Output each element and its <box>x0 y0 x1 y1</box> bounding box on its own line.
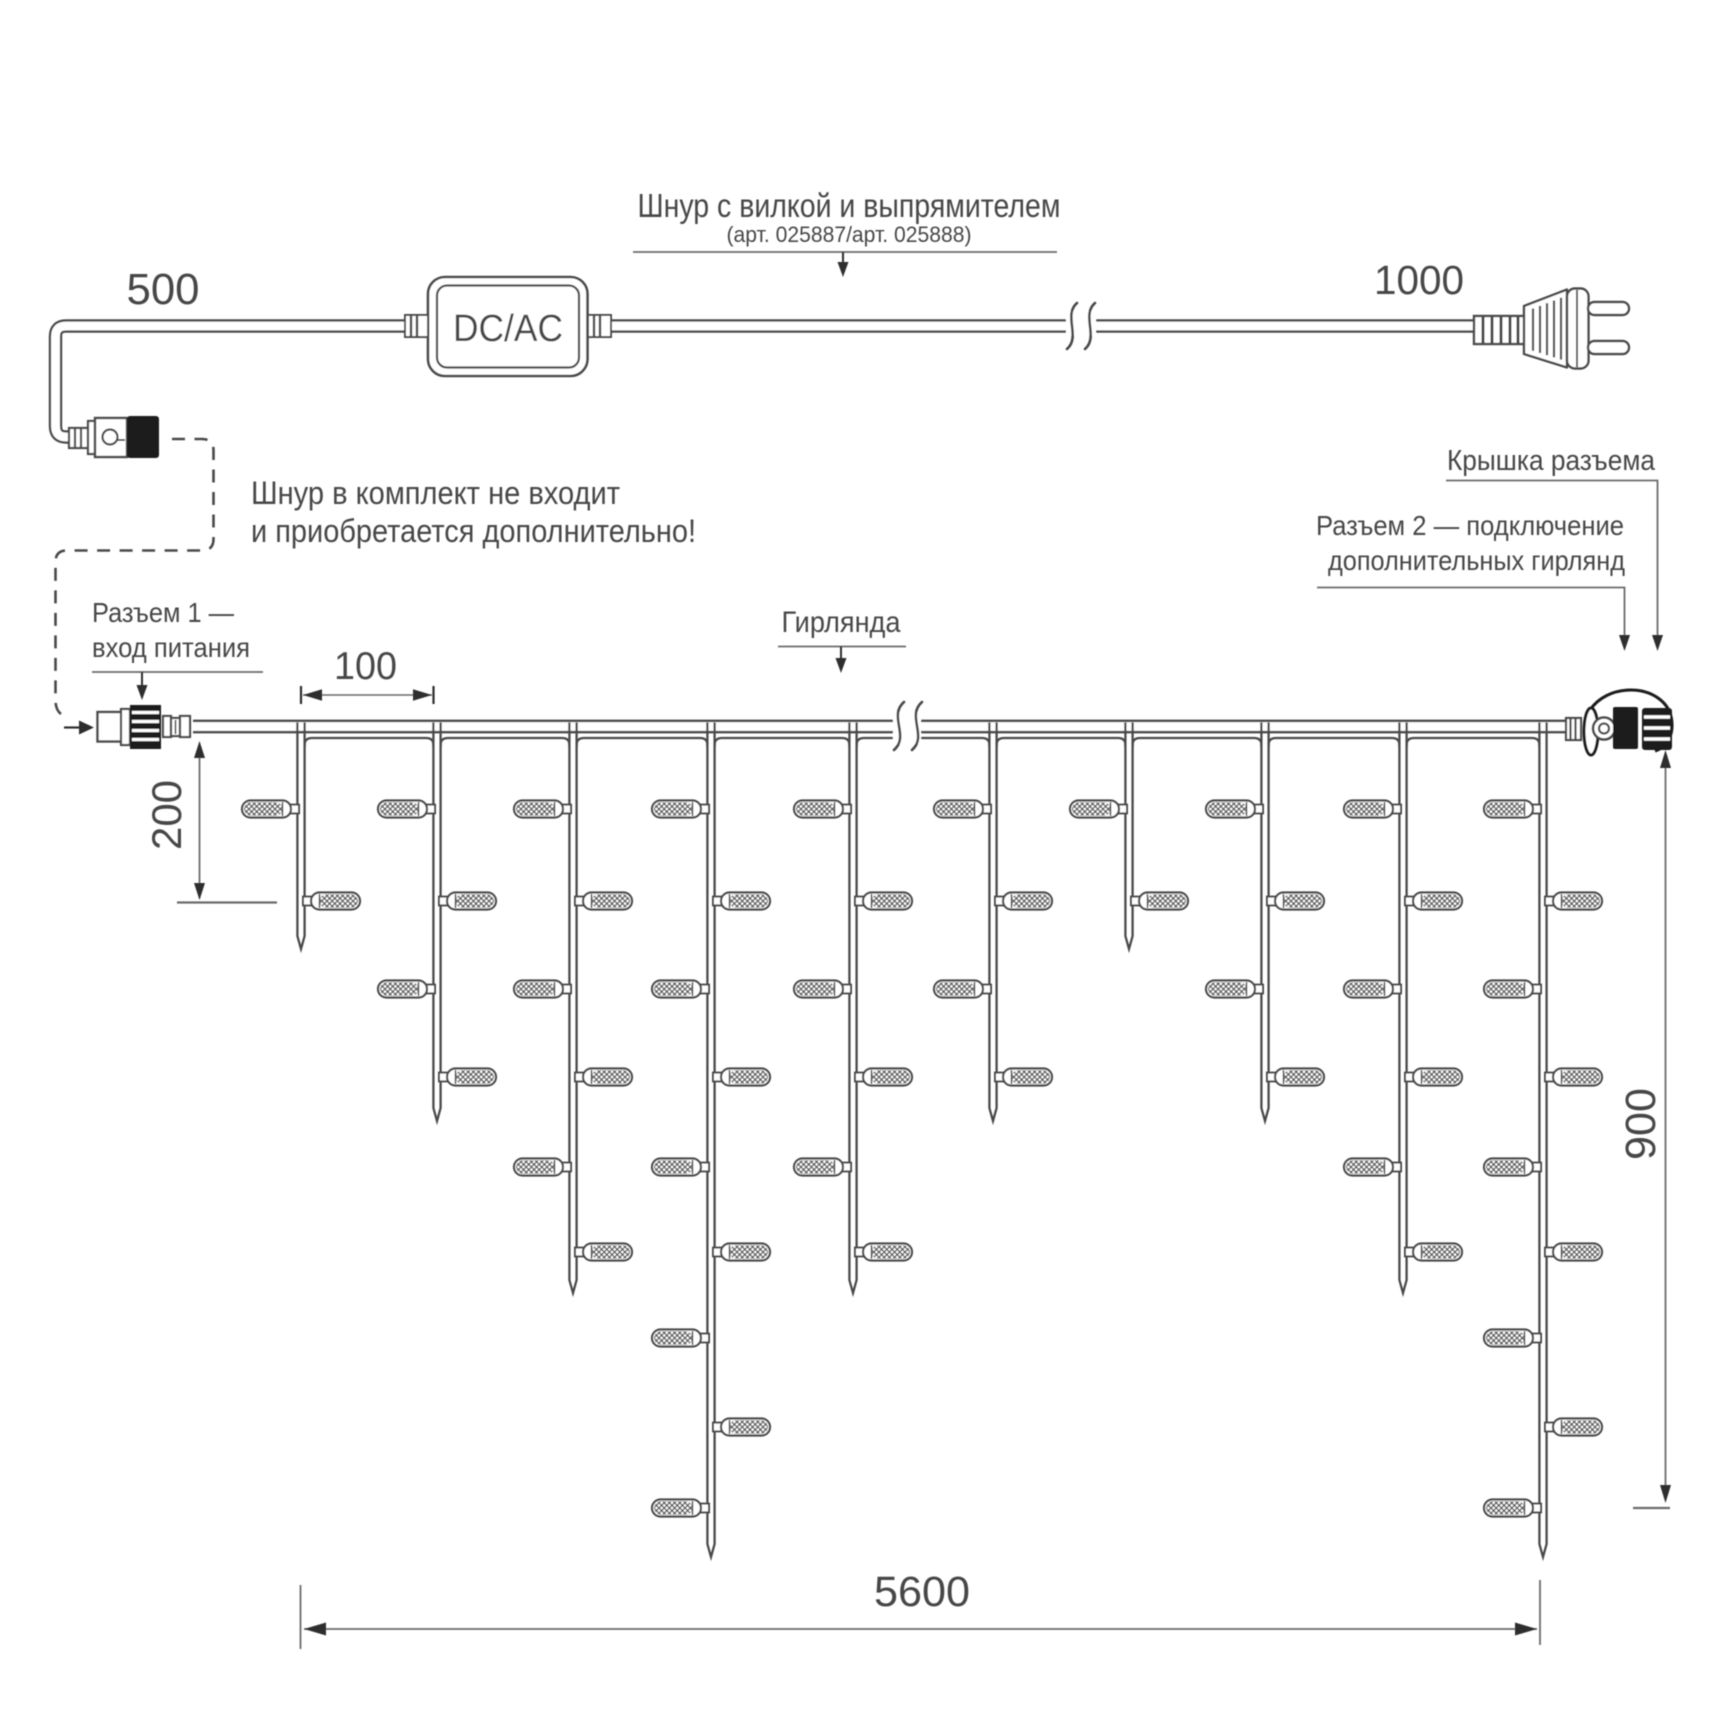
svg-text:Шнур с вилкой и выпрямителем: Шнур с вилкой и выпрямителем <box>638 187 1061 224</box>
svg-text:200: 200 <box>143 780 190 850</box>
svg-text:5600: 5600 <box>874 1568 970 1616</box>
svg-text:Гирлянда: Гирлянда <box>782 606 901 639</box>
svg-text:1000: 1000 <box>1374 257 1464 303</box>
svg-text:900: 900 <box>1617 1088 1665 1160</box>
svg-text:100: 100 <box>334 645 397 688</box>
svg-text:Разъем 2 — подключение: Разъем 2 — подключение <box>1316 510 1624 541</box>
svg-text:500: 500 <box>127 265 200 314</box>
svg-text:Шнур в комплект не входит: Шнур в комплект не входит <box>251 475 620 511</box>
svg-text:и приобретается дополнительно!: и приобретается дополнительно! <box>251 513 696 549</box>
svg-text:(арт. 025887/арт. 025888): (арт. 025887/арт. 025888) <box>727 222 972 247</box>
svg-text:дополнительных гирлянд: дополнительных гирлянд <box>1328 545 1625 576</box>
svg-text:DC/AC: DC/AC <box>453 308 563 350</box>
svg-text:Крышка разъема: Крышка разъема <box>1447 445 1655 477</box>
svg-text:вход питания: вход питания <box>92 632 250 663</box>
svg-text:Разъем 1 —: Разъем 1 — <box>92 597 234 628</box>
